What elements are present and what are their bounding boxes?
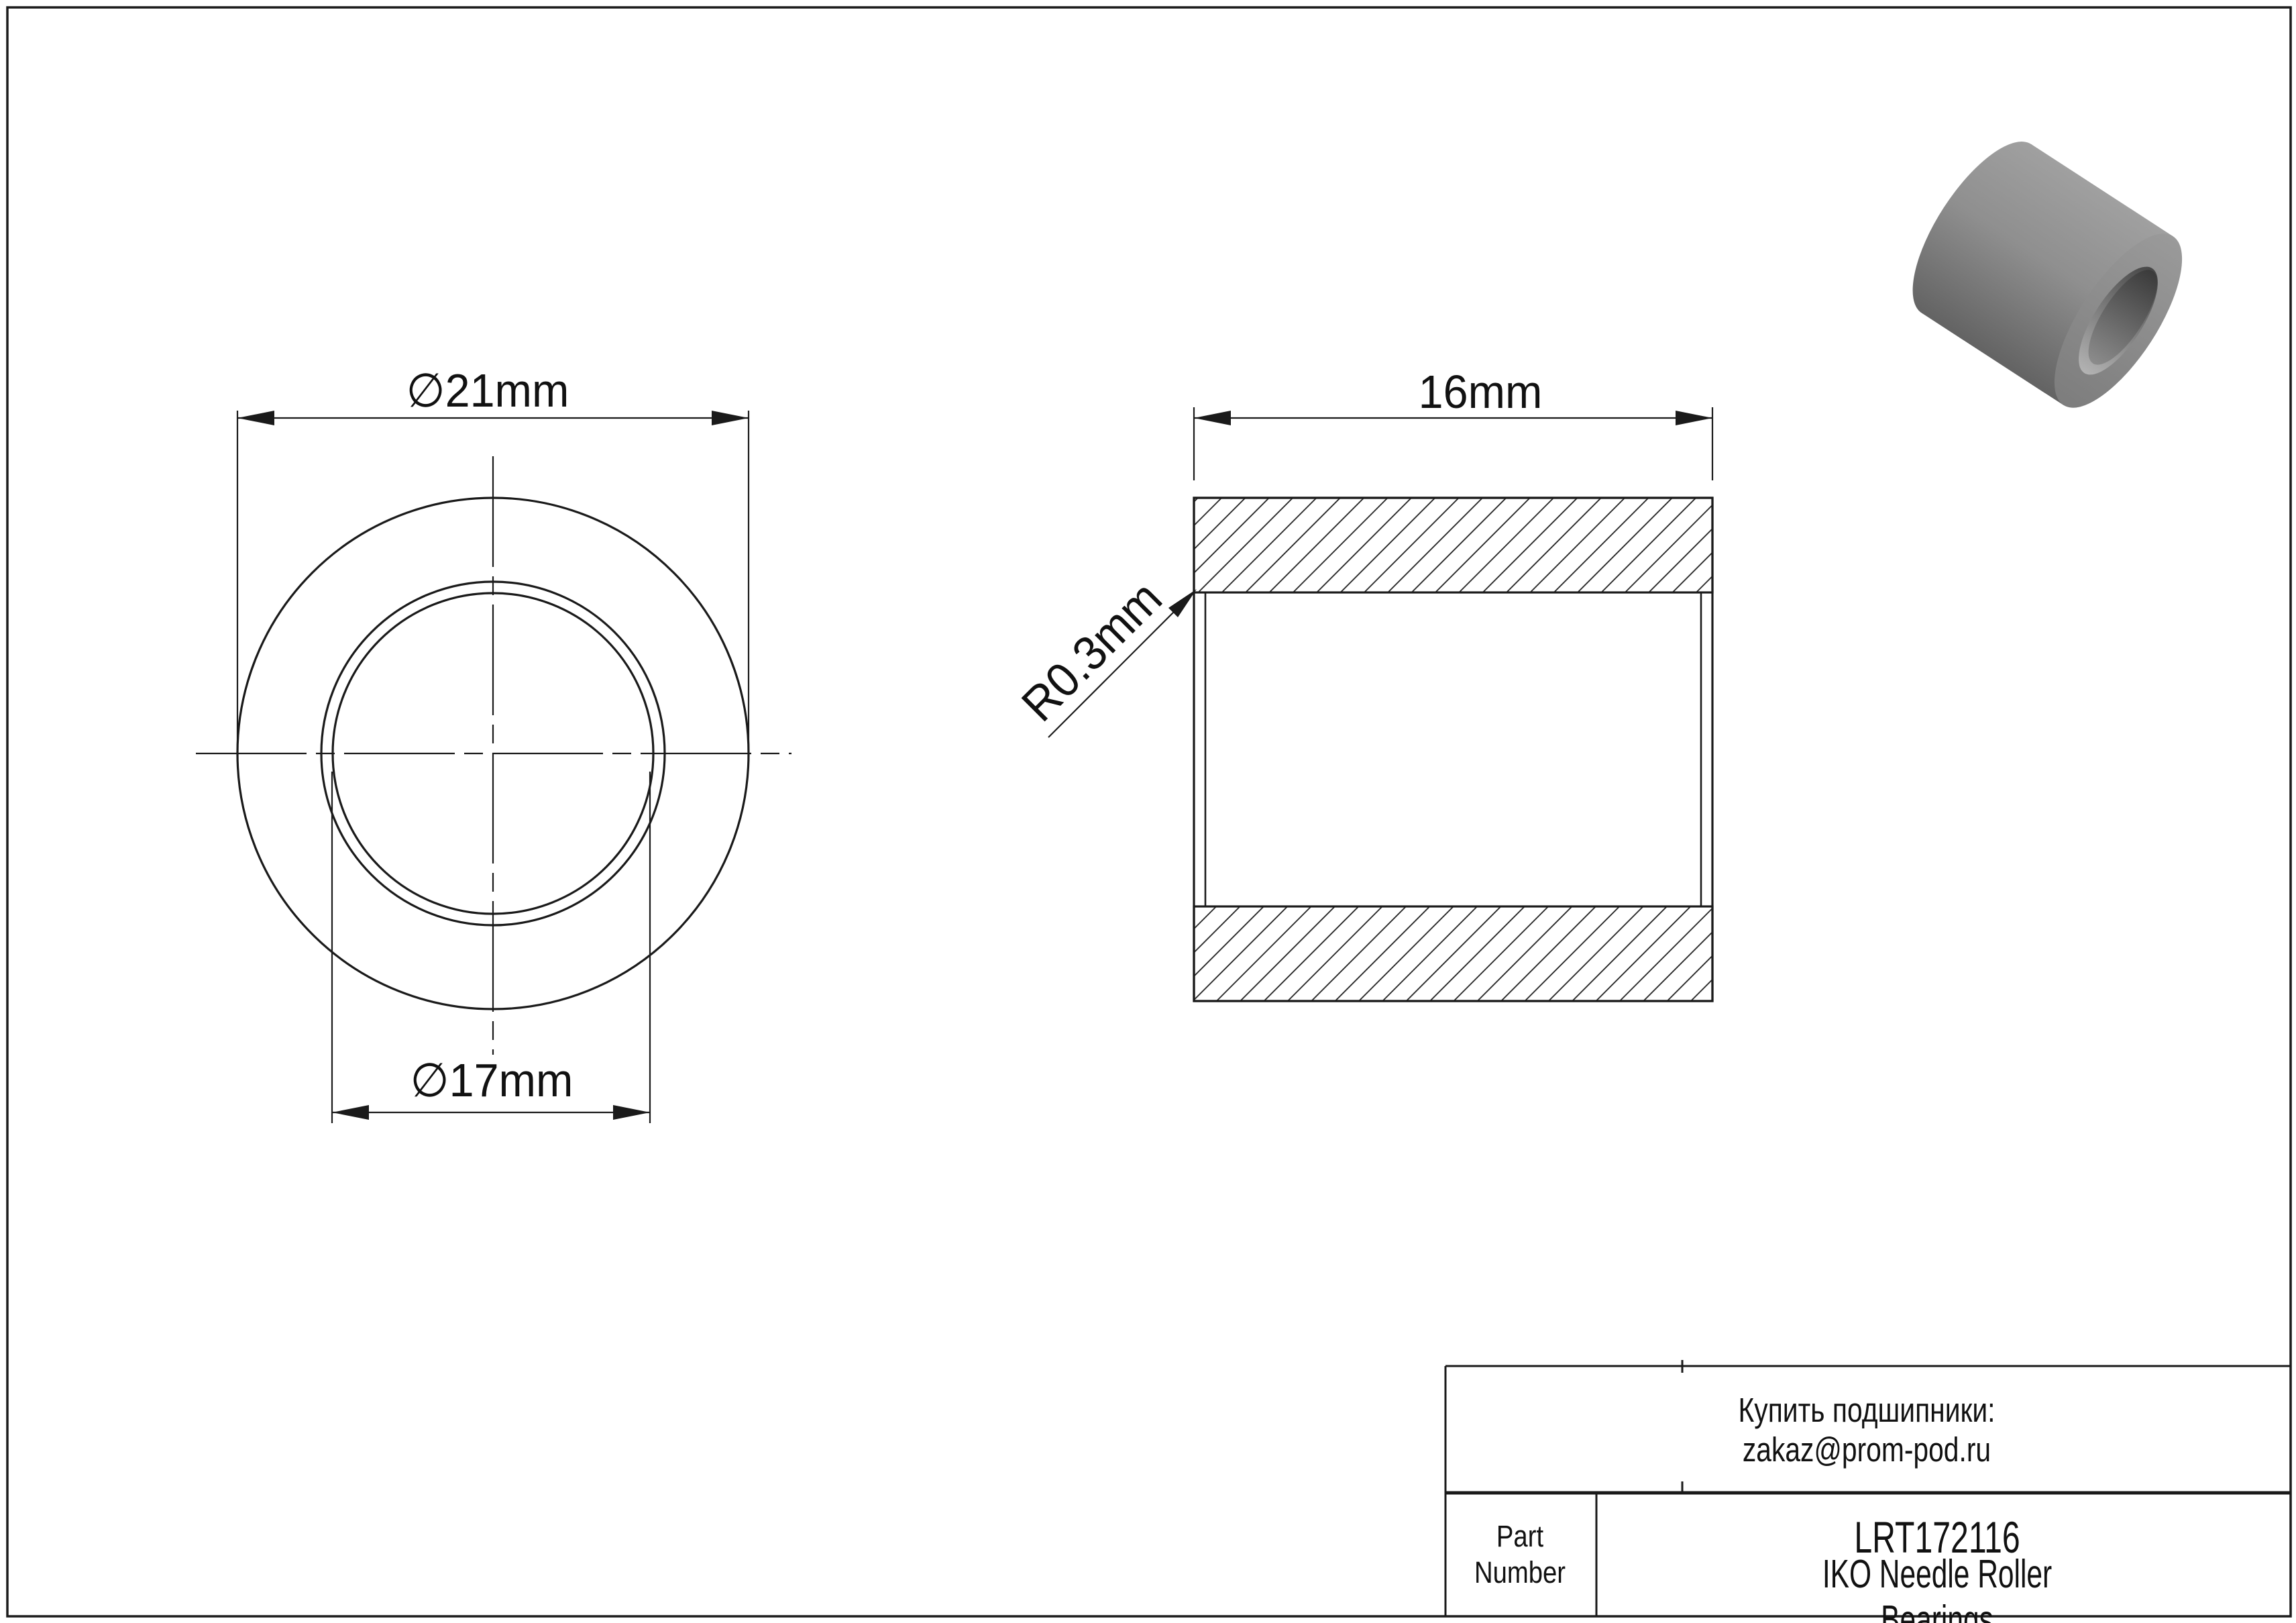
od-arrow-left	[237, 411, 274, 425]
drawing-canvas	[0, 0, 2296, 1623]
part-number-label: Part Number	[1466, 1518, 1574, 1591]
brand-line: IKO Needle Roller Bearings	[1758, 1551, 2117, 1623]
drawing-sheet: ∅21mm ∅17mm 16mm R0.3mm Купить подшипник…	[0, 0, 2296, 1623]
id-dimension-label: ∅17mm	[406, 1053, 577, 1108]
width-dimension-label: 16mm	[1415, 365, 1545, 419]
id-dimension-text: ∅17mm	[411, 1053, 573, 1108]
od-dimension-label: ∅21mm	[402, 363, 573, 418]
part-number-label-text: Part Number	[1474, 1518, 1566, 1591]
section-hatch-top	[1194, 498, 1712, 592]
brand-line-text: IKO Needle Roller Bearings	[1808, 1551, 2066, 1623]
id-arrow-right	[613, 1105, 650, 1120]
od-dimension-text: ∅21mm	[406, 363, 569, 418]
part-3d-render	[1889, 123, 2205, 426]
section-hatch-bottom	[1194, 906, 1712, 1001]
width-arrow-right	[1676, 411, 1712, 425]
contact-note-text: Купить подшипники: zakaz@prom-pod.ru	[1695, 1390, 2038, 1469]
id-arrow-left	[332, 1105, 369, 1120]
od-arrow-right	[712, 411, 749, 425]
width-dimension-text: 16mm	[1419, 365, 1543, 419]
front-view	[196, 411, 791, 1123]
section-view	[1048, 407, 1712, 1001]
contact-note: Купить подшипники: zakaz@prom-pod.ru	[1652, 1390, 2081, 1469]
width-arrow-left	[1194, 411, 1231, 425]
